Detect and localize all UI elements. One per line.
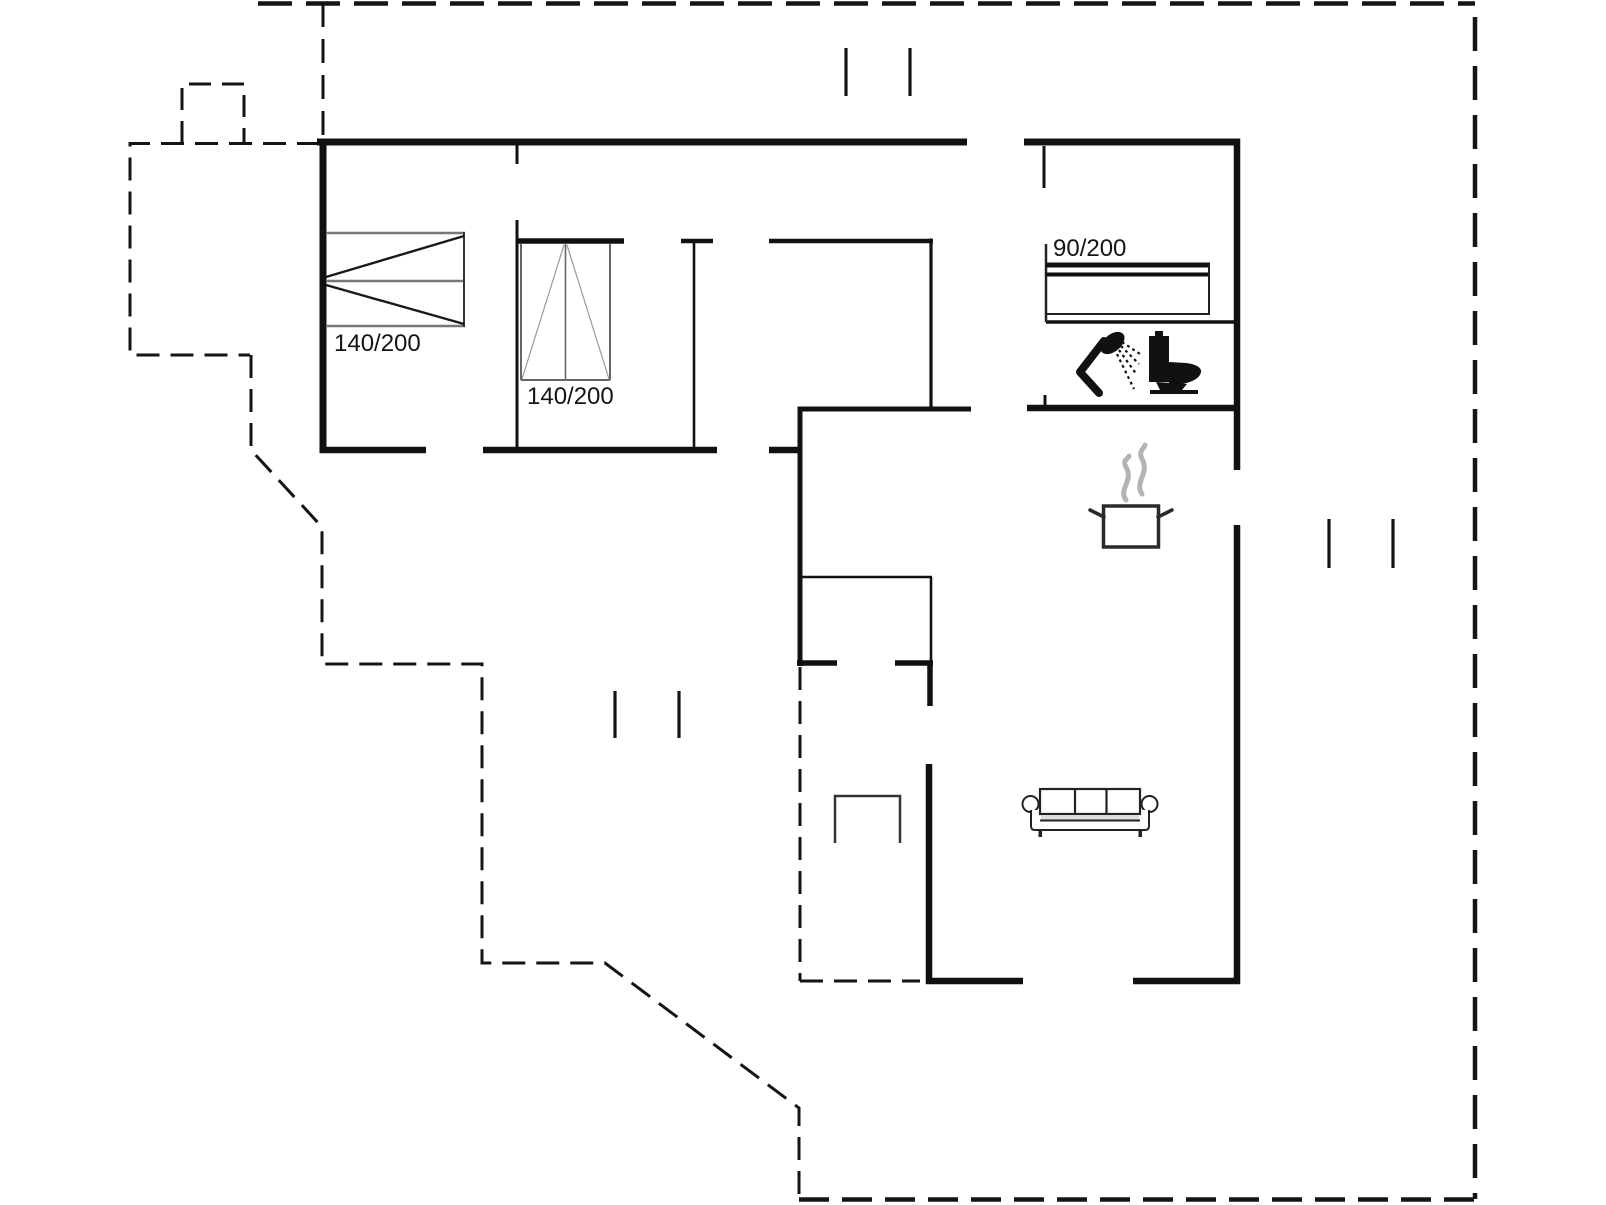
svg-text:140/200: 140/200 bbox=[334, 330, 421, 357]
svg-text:90/200: 90/200 bbox=[1053, 235, 1126, 262]
svg-text:140/200: 140/200 bbox=[527, 383, 614, 410]
